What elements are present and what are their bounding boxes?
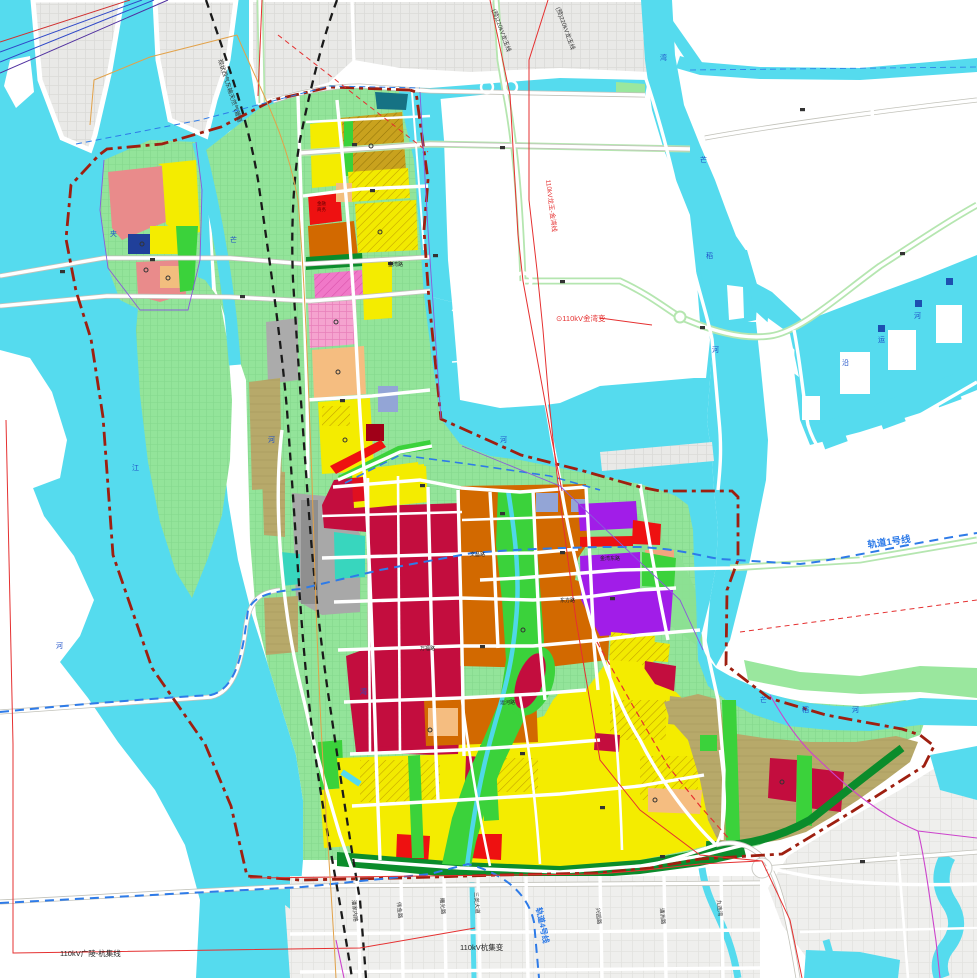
svg-text:万福路: 万福路 (420, 645, 435, 652)
svg-text:湾: 湾 (360, 687, 367, 696)
svg-text:金湾东路: 金湾东路 (600, 555, 620, 562)
svg-text:稻: 稻 (802, 705, 809, 714)
svg-text:110kV广陵-杭集线: 110kV广陵-杭集线 (60, 948, 121, 958)
svg-text:金湾路: 金湾路 (388, 261, 403, 268)
svg-text:芒: 芒 (760, 695, 767, 704)
svg-text:110kV杭集变: 110kV杭集变 (460, 942, 504, 952)
svg-text:运: 运 (878, 336, 885, 344)
svg-text:金融: 金融 (317, 200, 326, 207)
svg-text:⊙110kV金湾变: ⊙110kV金湾变 (556, 313, 606, 323)
svg-text:东方路: 东方路 (560, 597, 575, 604)
svg-text:运河路: 运河路 (500, 699, 515, 706)
svg-text:稻: 稻 (706, 251, 713, 260)
svg-text:河: 河 (852, 706, 859, 714)
svg-text:河: 河 (268, 436, 275, 444)
svg-text:沿: 沿 (842, 358, 849, 367)
svg-text:湾: 湾 (660, 53, 667, 62)
svg-text:河: 河 (712, 346, 719, 354)
svg-text:夹: 夹 (110, 229, 117, 238)
svg-text:河: 河 (500, 436, 507, 444)
svg-text:芒: 芒 (230, 235, 237, 244)
svg-text:河: 河 (56, 642, 63, 650)
svg-text:商务: 商务 (317, 206, 326, 213)
svg-text:文昌路: 文昌路 (470, 551, 485, 558)
svg-text:河: 河 (914, 312, 921, 320)
svg-text:江: 江 (132, 464, 139, 472)
svg-text:芒: 芒 (700, 155, 707, 164)
